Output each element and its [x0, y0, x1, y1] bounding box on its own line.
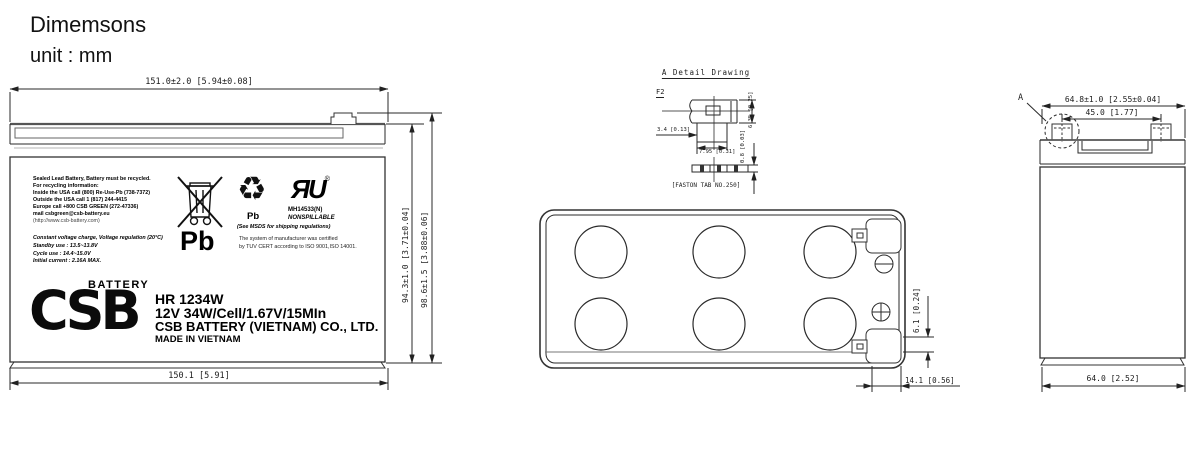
ul-recognized-icon: ЯU®: [291, 176, 330, 202]
pb-small-text: Pb: [247, 212, 259, 222]
detail-drawing-title: A Detail Drawing: [662, 69, 750, 79]
side-body: [1040, 167, 1185, 358]
crossed-bin-icon: [176, 175, 224, 231]
battery-dimension-drawing: Dimemsons unit : mm 151.0±2.0 [5.94±0.08…: [0, 0, 1200, 461]
cell-circle: [693, 298, 745, 350]
front-terminal-tab: [331, 113, 356, 124]
cell-circle: [575, 226, 627, 278]
dim-tab-thickness: 0.8 [0.03]: [741, 130, 747, 163]
cell-circle: [575, 298, 627, 350]
dim-side-width-bottom: 64.0 [2.52]: [1087, 375, 1140, 383]
side-base: [1041, 358, 1184, 365]
cell-circle: [693, 226, 745, 278]
side-handle-recess: [1078, 141, 1152, 153]
unit-note: unit : mm: [30, 46, 112, 66]
dim-terminal-inset: 14.1 [0.56]: [905, 377, 955, 385]
made-in-text: MADE IN VIETNAM: [155, 335, 241, 345]
side-view: [1027, 103, 1185, 392]
cell-circle: [804, 226, 856, 278]
company-name: CSB BATTERY (VIETNAM) CO., LTD.: [155, 320, 378, 333]
terminal-tab-top: [852, 219, 901, 253]
flat-screw-icon: [875, 255, 893, 273]
dim-tab-offset: 3.4 [0.13]: [657, 128, 690, 134]
terminal-tab-bottom: [852, 329, 901, 363]
pb-large-text: Pb: [180, 228, 215, 255]
dim-side-width-top: 64.8±1.0 [2.55±0.04]: [1065, 96, 1161, 104]
ul-file-number: MH14533(N): [288, 207, 322, 213]
charge-info-block: Constant voltage charge, Voltage regulat…: [33, 235, 163, 266]
nonspillable-text: NONSPILLABLE: [288, 215, 335, 221]
cell-circle: [804, 298, 856, 350]
front-lid-recess: [15, 128, 343, 138]
dim-front-height-total: 98.6±1.5 [3.88±0.06]: [421, 212, 429, 308]
front-base: [10, 362, 385, 368]
dim-front-width-bottom: 150.1 [5.91]: [168, 372, 229, 381]
detail-section-label: F2: [656, 89, 664, 98]
model-number: HR 1234W: [155, 292, 223, 306]
dim-side-terminal-spacing: 45.0 [1.77]: [1086, 109, 1139, 117]
csb-logo: CSB: [29, 284, 138, 338]
dim-tab-width: 6.35 [0.25]: [749, 92, 755, 128]
top-view-outer: [540, 210, 905, 368]
top-view: [540, 210, 960, 392]
side-terminal-left: [1052, 119, 1072, 142]
detail-a-label: A: [1018, 94, 1023, 103]
faston-tab-caption: [FASTON TAB NO.250]: [672, 183, 741, 189]
tuv-cert-line2: by TUV CERT according to ISO 9001,ISO 14…: [239, 245, 357, 250]
spec-text: 12V 34W/Cell/1.67V/15MIn: [155, 306, 326, 320]
dim-terminal-offset: 6.1 [0.24]: [913, 288, 921, 333]
dim-tab-length: 7.95 [0.31]: [698, 150, 736, 156]
registered-icon: ®: [325, 176, 330, 183]
page-title: Dimemsons: [30, 14, 146, 36]
top-view-inner: [546, 215, 899, 363]
dim-front-width-top: 151.0±2.0 [5.94±0.08]: [145, 78, 252, 87]
phillips-screw-icon: [872, 303, 890, 321]
tuv-cert-line1: The system of manufacturer was certified: [239, 237, 338, 242]
dim-front-height-case: 94.3±1.0 [3.71±0.04]: [402, 207, 410, 303]
side-terminal-right: [1151, 119, 1171, 142]
recycling-info-block: Sealed Lead Battery, Battery must be rec…: [33, 176, 151, 225]
msds-note: (See MSDS for shipping regulations): [237, 225, 330, 230]
recycle-icon: ♻: [237, 172, 267, 205]
